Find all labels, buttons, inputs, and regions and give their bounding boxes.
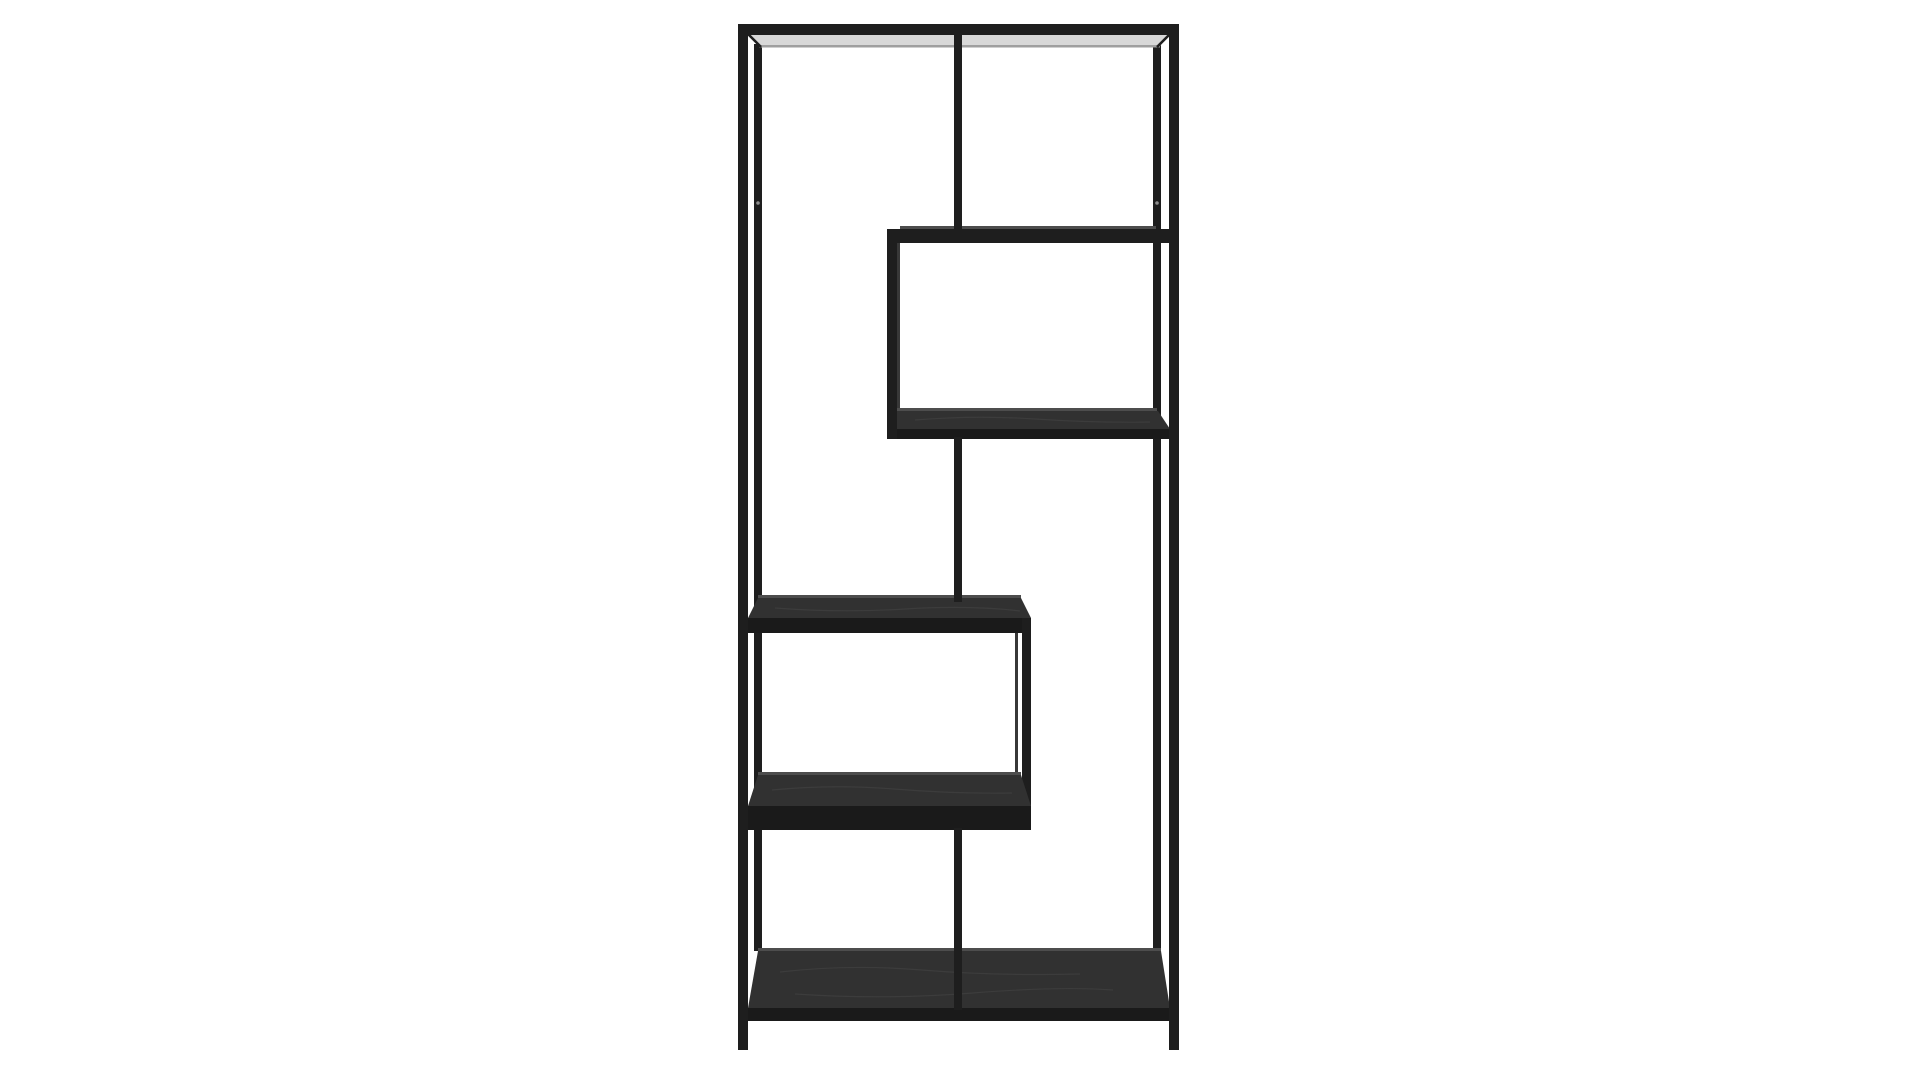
upper-box-bottom-back-highlight bbox=[897, 408, 1157, 411]
upper-box-bottom-surface bbox=[887, 411, 1170, 429]
center-divider-lower bbox=[954, 828, 962, 1010]
upper-box-back-edge bbox=[897, 243, 900, 415]
right-back-leg bbox=[1153, 44, 1161, 951]
middle-box-module bbox=[739, 595, 1031, 830]
frame-front bbox=[738, 24, 1179, 1050]
upper-box-left-side bbox=[887, 229, 897, 439]
right-front-leg bbox=[1169, 24, 1179, 1050]
center-divider-middle bbox=[954, 437, 962, 602]
upper-box-bottom-front-edge bbox=[887, 429, 1179, 439]
center-divider-upper bbox=[954, 33, 962, 229]
middle-box-bottom-surface bbox=[748, 775, 1031, 806]
middle-shelf-front-edge bbox=[739, 618, 1031, 633]
upper-box-top-shelf bbox=[887, 229, 1179, 243]
middle-box-bottom-back-highlight bbox=[758, 772, 1021, 775]
middle-box-bottom-front-edge bbox=[739, 806, 1031, 830]
middle-shelf-back-highlight bbox=[758, 595, 1021, 598]
screw-hole bbox=[1155, 201, 1159, 205]
screw-hole bbox=[756, 201, 760, 205]
middle-box-back-edge bbox=[1015, 633, 1018, 773]
product-photo bbox=[0, 0, 1920, 1080]
upper-box-module bbox=[887, 226, 1179, 439]
upper-box-top-sliver bbox=[900, 226, 1156, 229]
shelving-unit-photo bbox=[0, 0, 1920, 1080]
left-front-leg bbox=[738, 24, 748, 1050]
